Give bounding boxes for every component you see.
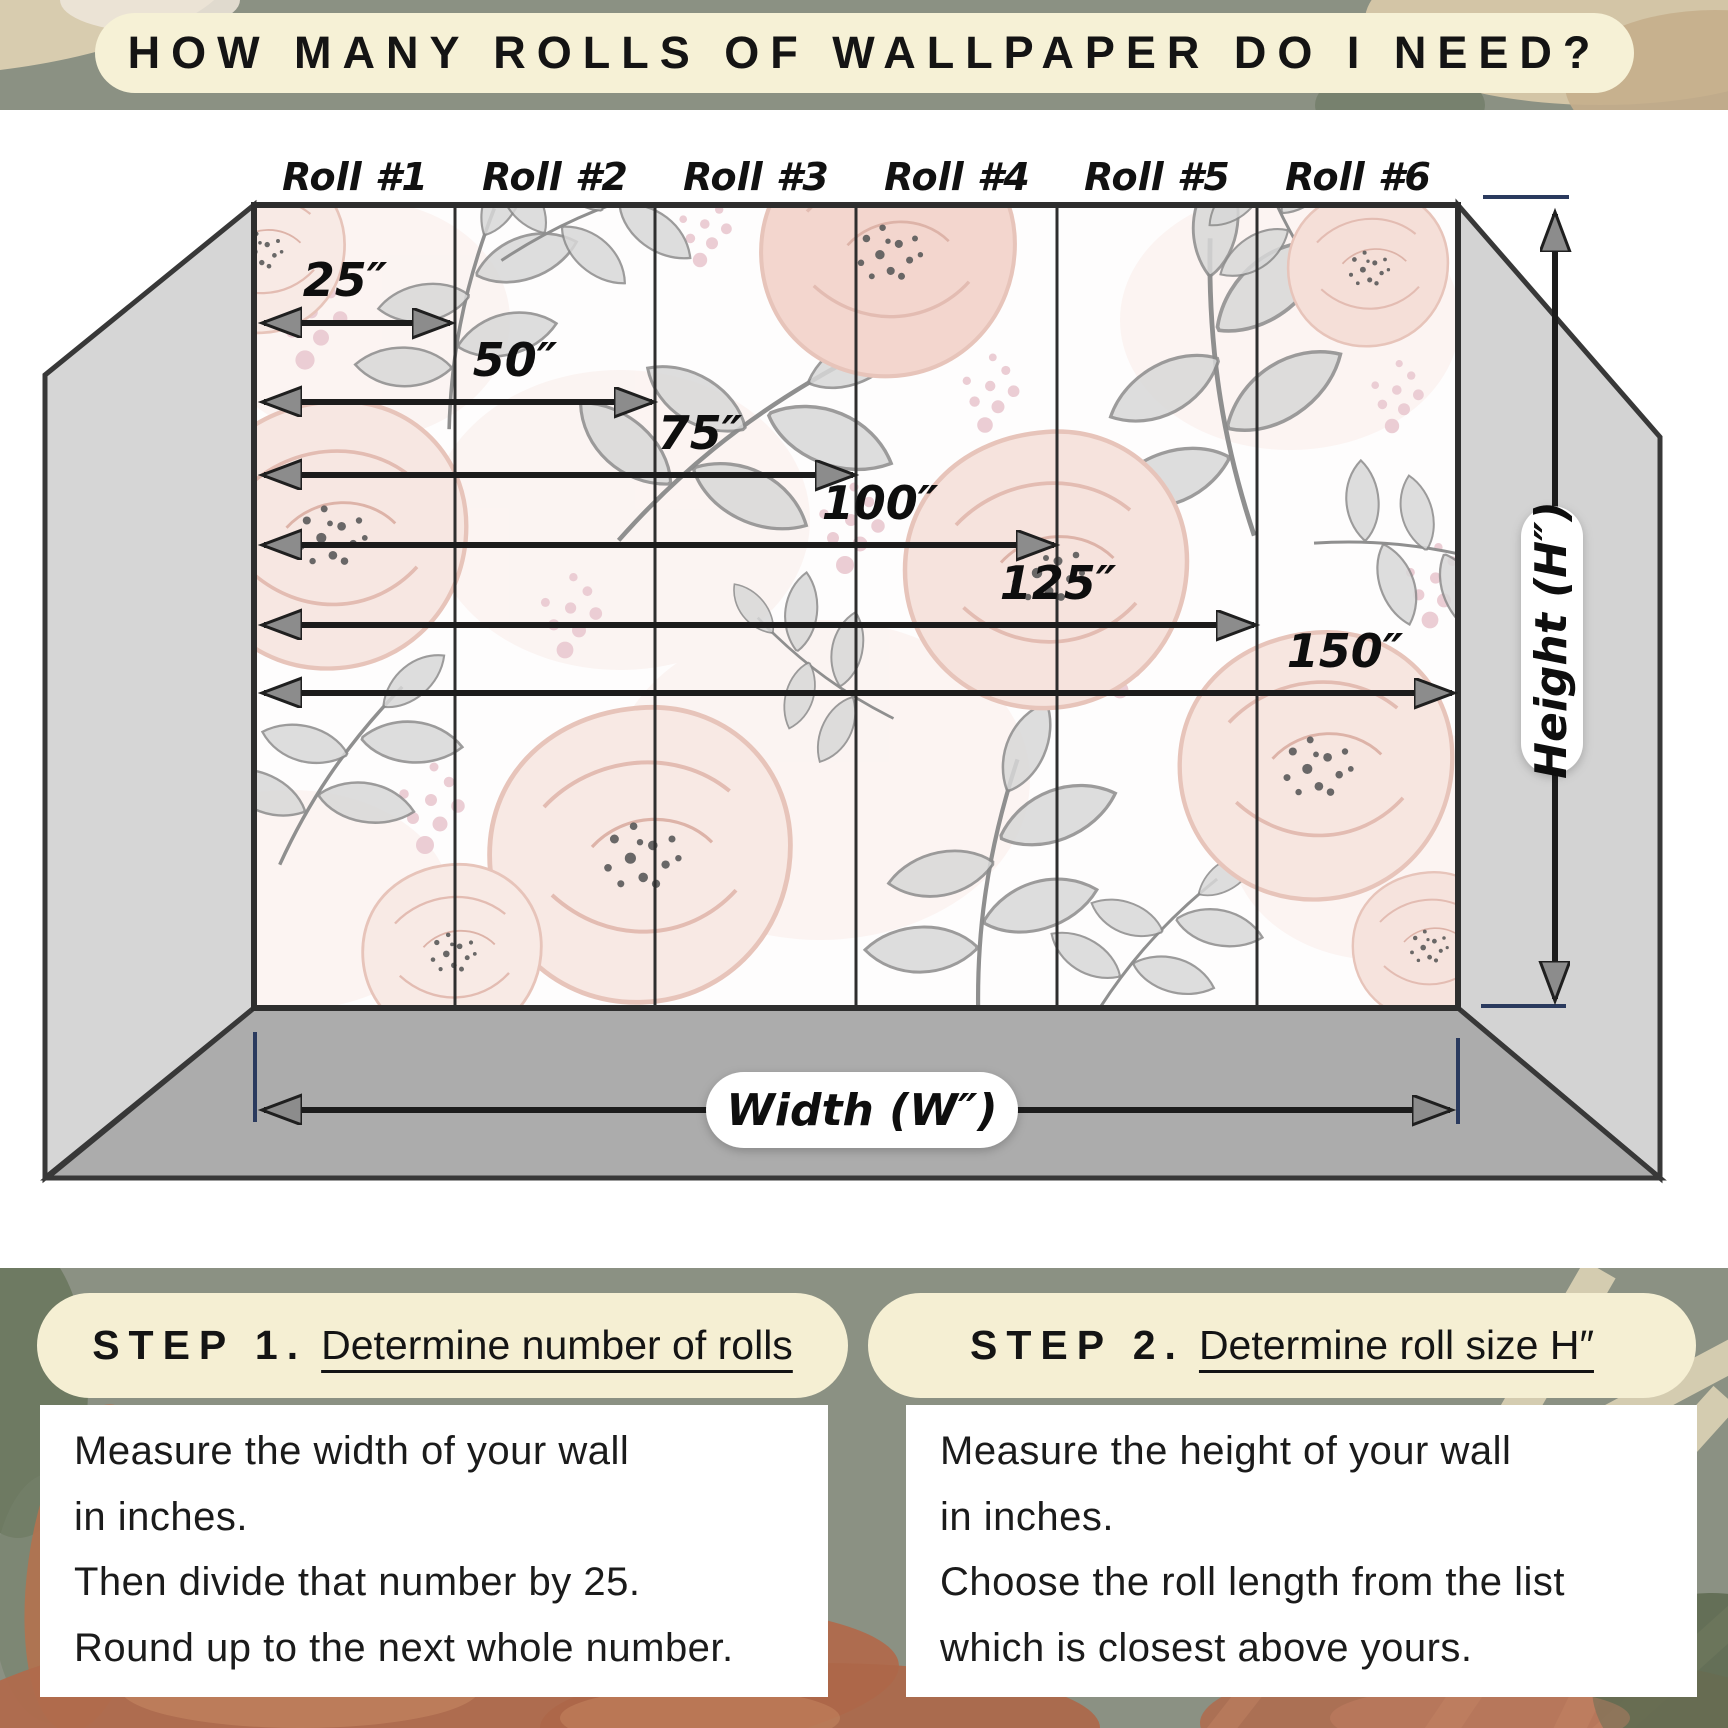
step1-line-3: Then divide that number by 25.	[74, 1550, 828, 1616]
step1-label: STEP 1.	[92, 1322, 307, 1369]
top-band: HOW MANY ROLLS OF WALLPAPER DO I NEED?	[0, 0, 1728, 110]
step1-line-2: in inches.	[74, 1485, 828, 1551]
step2-heading: Determine roll size H″	[1199, 1322, 1594, 1369]
title-pill: HOW MANY ROLLS OF WALLPAPER DO I NEED?	[95, 13, 1634, 93]
step2-line-1: Measure the height of your wall	[940, 1419, 1697, 1485]
roll-label-6: Roll #6	[1285, 155, 1431, 199]
step2-label: STEP 2.	[970, 1322, 1185, 1369]
measure-label-125: 125″	[1000, 556, 1117, 610]
height-label-pill: Height (H″)	[1521, 501, 1583, 779]
page-title: HOW MANY ROLLS OF WALLPAPER DO I NEED?	[128, 27, 1602, 79]
step2-line-2: in inches.	[940, 1485, 1697, 1551]
step2-line-4: which is closest above yours.	[940, 1616, 1697, 1682]
step2-body: Measure the height of your wall in inche…	[906, 1405, 1697, 1697]
roll-label-4: Roll #4	[884, 155, 1030, 199]
infographic-page: Roll #1 Roll #2 Roll #3 Roll #4 Roll #5 …	[0, 0, 1728, 1728]
step1-body: Measure the width of your wall in inches…	[40, 1405, 828, 1697]
measure-label-75: 75″	[658, 406, 743, 460]
step1-line-4: Round up to the next whole number.	[74, 1616, 828, 1682]
width-label-pill: Width (W″)	[706, 1072, 1018, 1148]
measure-label-150: 150″	[1287, 624, 1404, 678]
step1-header-pill: STEP 1. Determine number of rolls	[37, 1293, 848, 1398]
measure-label-25: 25″	[303, 253, 388, 307]
step2-header-pill: STEP 2. Determine roll size H″	[868, 1293, 1696, 1398]
width-label: Width (W″)	[726, 1085, 997, 1136]
measure-label-50: 50″	[473, 333, 558, 387]
roll-label-3: Roll #3	[683, 155, 829, 199]
measure-label-100: 100″	[822, 476, 939, 530]
step1-heading: Determine number of rolls	[321, 1322, 793, 1369]
height-label: Height (H″)	[1526, 501, 1577, 779]
step1-line-1: Measure the width of your wall	[74, 1419, 828, 1485]
roll-label-2: Roll #2	[482, 155, 628, 199]
step2-line-3: Choose the roll length from the list	[940, 1550, 1697, 1616]
bottom-band: STEP 1. Determine number of rolls Measur…	[0, 1268, 1728, 1728]
roll-label-5: Roll #5	[1084, 155, 1230, 199]
roll-label-1: Roll #1	[282, 155, 428, 199]
